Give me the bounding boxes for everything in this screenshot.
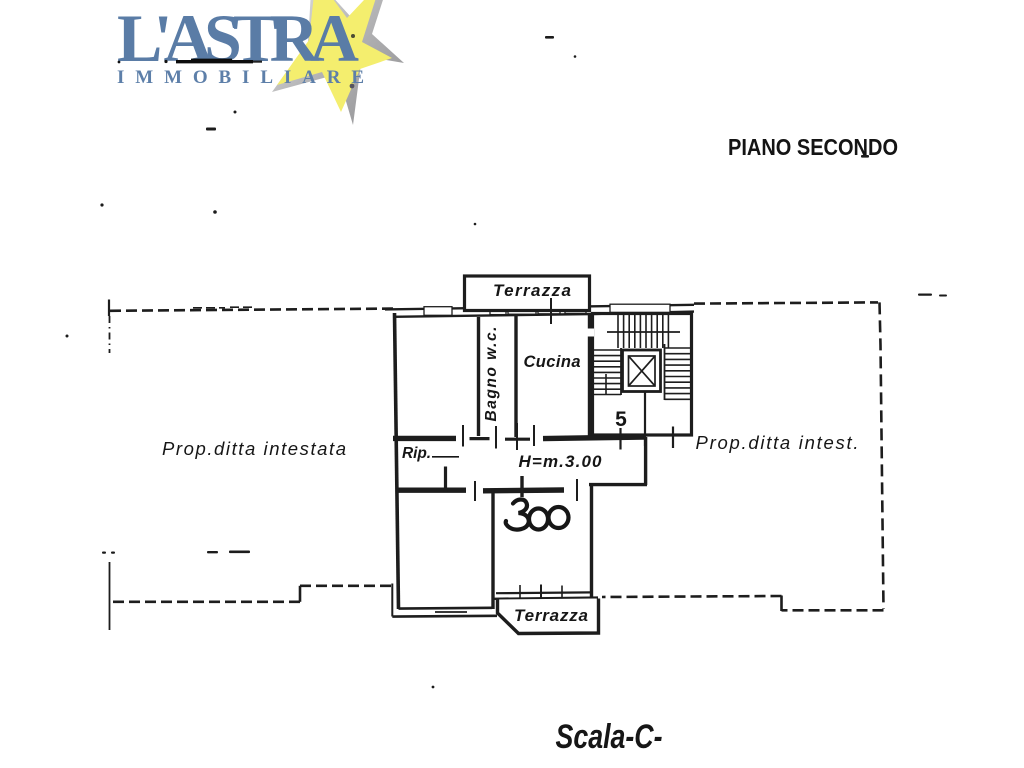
svg-text:Cucina: Cucina (524, 353, 581, 371)
svg-text:5: 5 (615, 408, 627, 431)
svg-text:Scala-C-: Scala-C- (556, 718, 663, 756)
svg-text:Terrazza: Terrazza (514, 606, 588, 625)
svg-text:PIANO SECONDO: PIANO SECONDO (728, 134, 898, 160)
svg-text:Bagno w.c.: Bagno w.c. (483, 327, 500, 422)
svg-text:H=m.3.00: H=m.3.00 (519, 452, 603, 471)
svg-text:Prop.ditta intestata: Prop.ditta intestata (162, 438, 346, 459)
svg-text:Terrazza: Terrazza (493, 281, 571, 300)
svg-text:Rip.: Rip. (402, 445, 431, 462)
svg-text:L'ASTRA: L'ASTRA (117, 0, 359, 76)
